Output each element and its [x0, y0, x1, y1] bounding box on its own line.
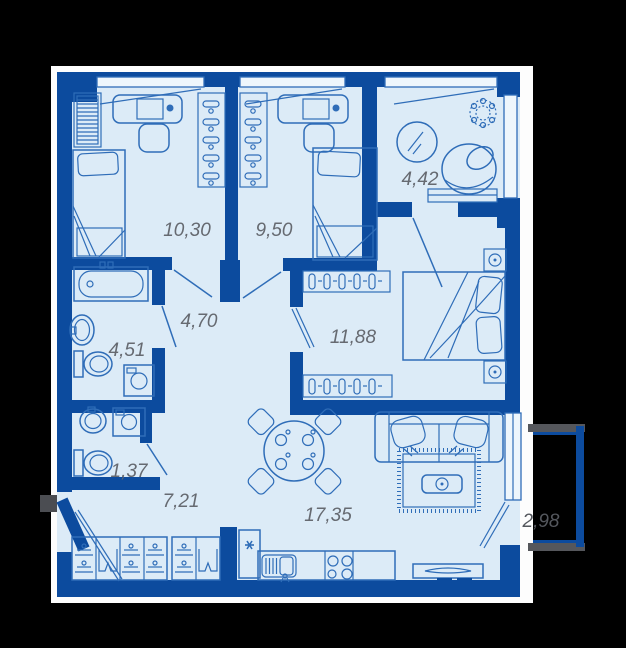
floor-plan: 10,30 9,50 4,42 4,70 11,88 4,51 1,37 7,2…: [0, 0, 626, 648]
room-label-hallway: 4,70: [181, 311, 218, 332]
room-label-corridor: 7,21: [163, 491, 200, 512]
window: [97, 77, 204, 87]
room-label-bathroom: 4,51: [109, 340, 146, 361]
room-label-bedroom-1: 10,30: [163, 220, 211, 241]
room-label-balcony: 2,98: [522, 511, 560, 532]
room-label-dressing-room: 4,42: [402, 169, 439, 190]
window: [240, 77, 345, 87]
room-label-bedroom-3: 11,88: [330, 327, 377, 348]
room-label-living-kitchen: 17,35: [304, 505, 352, 526]
floor-plan-canvas: 10,30 9,50 4,42 4,70 11,88 4,51 1,37 7,2…: [0, 0, 626, 648]
entry-wall-stub: [40, 495, 57, 512]
room-label-bedroom-2: 9,50: [256, 220, 293, 241]
room-label-wc: 1,37: [111, 461, 149, 482]
window: [385, 77, 497, 87]
window: [504, 95, 517, 198]
